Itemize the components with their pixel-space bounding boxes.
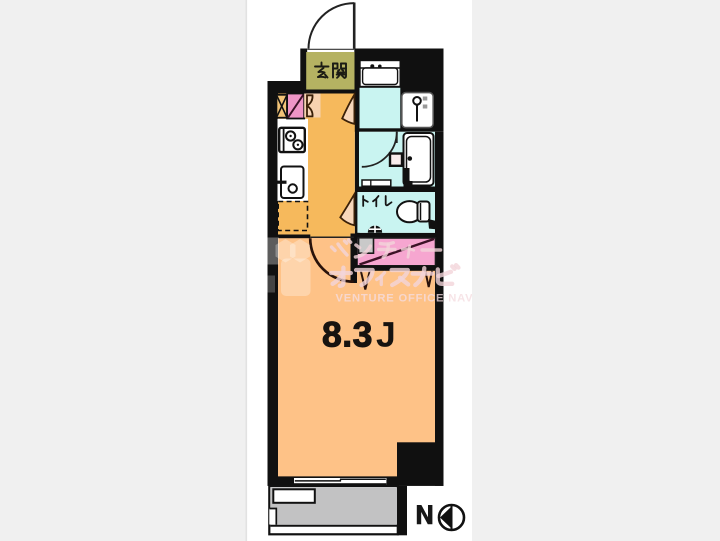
svg-text:8.3: 8.3: [322, 315, 373, 355]
svg-text:VENTURE OFFICE NAVI: VENTURE OFFICE NAVI: [336, 292, 478, 304]
svg-text:J: J: [376, 315, 396, 355]
